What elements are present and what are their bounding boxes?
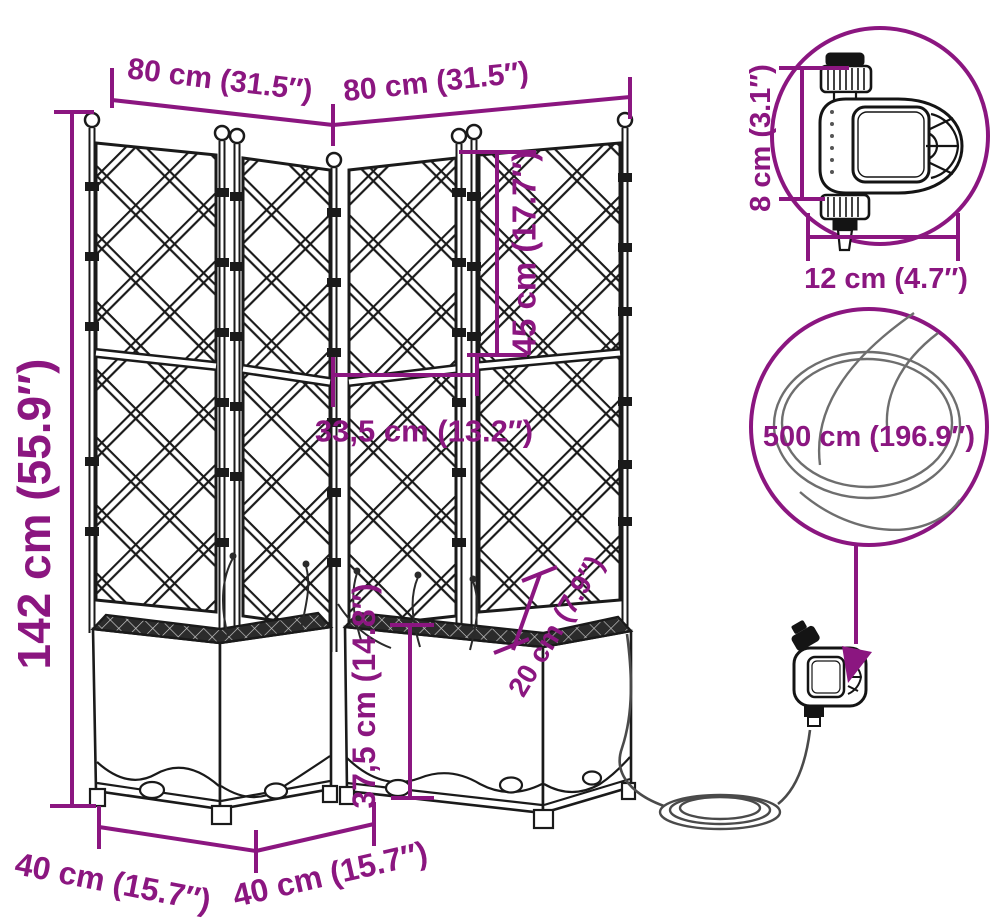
timer-detail-collar-ridges bbox=[828, 68, 864, 90]
hose-leader-arrow bbox=[842, 545, 872, 683]
label-width-left: 80 cm (31.5″) bbox=[126, 52, 315, 107]
trellis-panel-4 bbox=[479, 143, 620, 612]
planter-right-hole-2 bbox=[500, 778, 522, 793]
label-base-left: 40 cm (15.7″) bbox=[12, 845, 214, 918]
timer-detail-cap bbox=[826, 53, 864, 66]
timer-detail-display bbox=[853, 107, 929, 182]
dim-base-left bbox=[99, 806, 256, 873]
label-height-total: 142 cm (55.9″) bbox=[8, 359, 60, 670]
timer-detail bbox=[820, 53, 962, 250]
label-base-right: 40 cm (15.7″) bbox=[229, 834, 431, 914]
callout-circle-timer bbox=[772, 28, 988, 250]
product-dimension-diagram: 80 cm (31.5″) 80 cm (31.5″) 142 cm (55.9… bbox=[0, 0, 1003, 921]
timer-detail-outlet-pipe bbox=[838, 230, 852, 250]
planter-right-hole-1 bbox=[386, 780, 410, 796]
label-upper-panel-height: 45 cm (17.7″) bbox=[506, 151, 543, 356]
hose-coil bbox=[660, 795, 780, 829]
label-width-right: 80 cm (31.5″) bbox=[342, 56, 531, 108]
callout-circle-hose bbox=[751, 309, 987, 683]
planter-right bbox=[340, 627, 635, 828]
timer-unit-outlet bbox=[804, 706, 824, 717]
planter-right-side-face bbox=[543, 631, 631, 813]
diagram-canvas: 80 cm (31.5″) 80 cm (31.5″) 142 cm (55.9… bbox=[0, 0, 1003, 921]
trellis-panel-3 bbox=[349, 158, 456, 628]
timer-unit-outlet-pipe bbox=[808, 717, 820, 726]
planter-left-hole-1 bbox=[140, 782, 164, 798]
label-panel-width: 33,5 cm (13.2″) bbox=[315, 414, 533, 449]
planter-left bbox=[90, 627, 337, 824]
planter-right-hole-3 bbox=[583, 772, 601, 785]
trellis-panel-2 bbox=[243, 158, 330, 628]
label-hose-length: 500 cm (196.9″) bbox=[763, 421, 975, 453]
label-timer-height: 8 cm (3.1″) bbox=[745, 64, 777, 212]
timer-detail-bottom-black bbox=[833, 219, 857, 230]
planter-left-side-face bbox=[220, 627, 331, 809]
label-planter-height: 37,5 cm (14.8″) bbox=[346, 583, 382, 808]
supply-hose bbox=[620, 634, 810, 829]
trellis-panel-1 bbox=[96, 143, 216, 612]
planter-left-hole-2 bbox=[265, 784, 287, 799]
label-timer-width: 12 cm (4.7″) bbox=[804, 263, 968, 295]
